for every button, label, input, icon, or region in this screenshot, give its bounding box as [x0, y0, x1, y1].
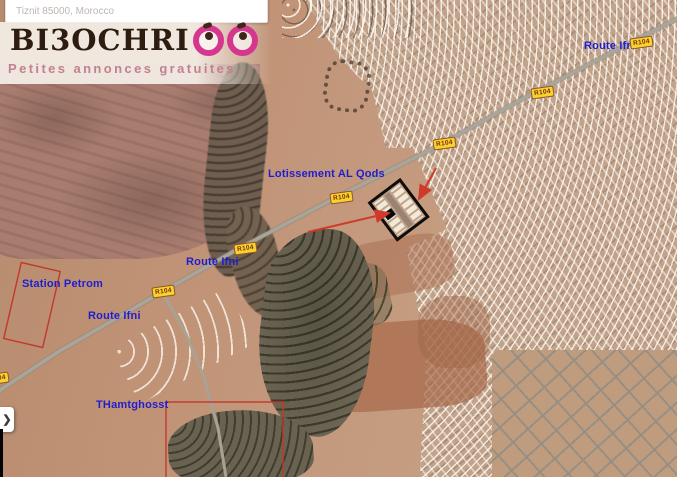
- label-station-petrom: Station Petrom: [22, 278, 103, 290]
- terrain-subdivision-grid: [492, 350, 677, 477]
- search-input[interactable]: [5, 0, 268, 23]
- terrain-roadside-buildings: [111, 288, 255, 404]
- label-route-ifni-left: Route Ifni: [88, 310, 141, 322]
- highlighted-plot: [383, 208, 396, 220]
- terrain-field: [418, 296, 490, 368]
- brand-logo[interactable]: BI3OCHRI: [10, 24, 258, 56]
- lotissement-al-qods-plan: [370, 180, 428, 240]
- label-thamtghosst: THamtghosst: [96, 399, 168, 411]
- terrain-walled-compound: [321, 57, 374, 115]
- terrain-sparse-buildings: [282, 0, 417, 38]
- route-shield-r104: R104: [329, 190, 353, 204]
- chevron-right-icon: ❯: [2, 413, 11, 426]
- label-route-ifni-mid: Route Ifni: [186, 256, 239, 268]
- logo-eye-icon: [193, 25, 224, 56]
- route-shield-r104: R104: [151, 284, 175, 298]
- logo-eye-icon: [227, 25, 258, 56]
- station-petrom-outline: [4, 263, 61, 348]
- map-viewport: Route Ifni Lotissement AL Qods Route Ifn…: [0, 0, 677, 477]
- label-lotissement: Lotissement AL Qods: [268, 168, 385, 180]
- route-shield-r104: R104: [0, 371, 10, 385]
- viewport-edge-sliver: [0, 429, 3, 477]
- brand-tagline: Petites annonces gratuites: [8, 61, 236, 76]
- brand-name: BI3OCHRI: [10, 24, 190, 56]
